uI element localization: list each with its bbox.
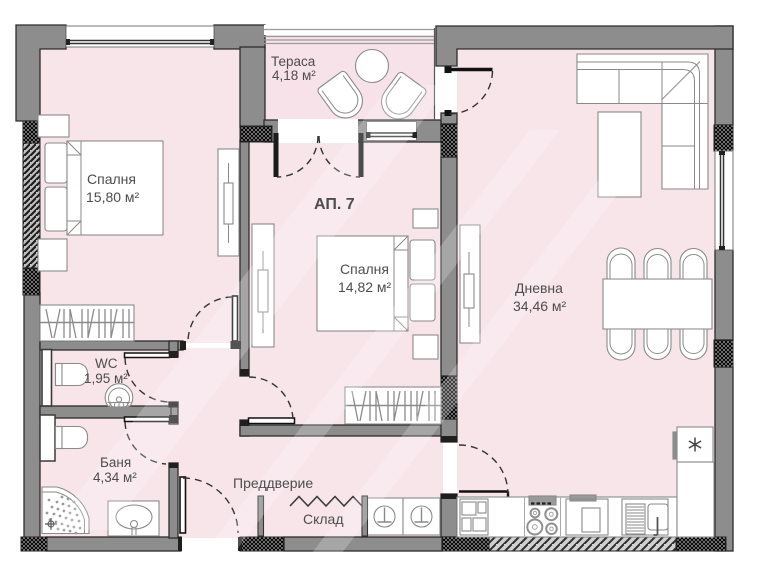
svg-text:15,80 м²: 15,80 м² [86,189,140,205]
svg-text:Баня: Баня [100,455,131,470]
svg-text:Тераса: Тераса [271,54,316,69]
svg-text:Преддверие: Преддверие [233,475,313,491]
svg-text:АП. 7: АП. 7 [314,196,355,213]
svg-text:Спалня: Спалня [340,261,389,277]
svg-text:14,82 м²: 14,82 м² [338,279,392,295]
svg-text:Склад: Склад [303,511,344,527]
svg-text:Спалня: Спалня [87,171,136,187]
svg-text:WC: WC [95,356,118,371]
svg-text:Дневна: Дневна [515,280,563,296]
svg-text:4,34 м²: 4,34 м² [93,470,137,485]
svg-text:34,46 м²: 34,46 м² [513,298,567,314]
svg-text:4,18 м²: 4,18 м² [272,68,316,83]
svg-text:1,95 м²: 1,95 м² [84,371,128,386]
